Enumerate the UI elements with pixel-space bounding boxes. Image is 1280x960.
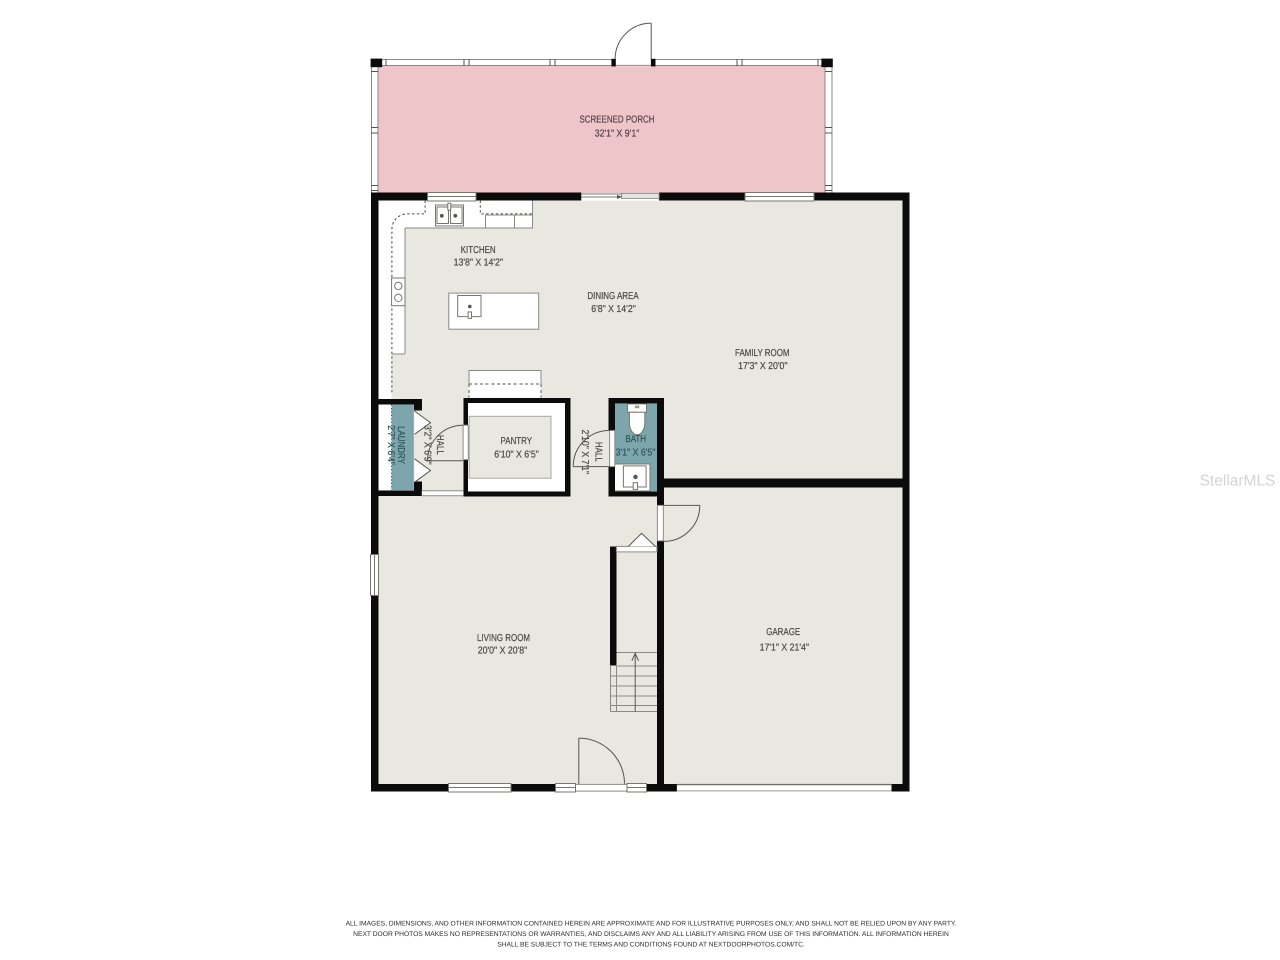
svg-text:LIVING ROOM: LIVING ROOM [477, 633, 530, 644]
svg-text:6'10" X 6'5": 6'10" X 6'5" [494, 449, 539, 460]
svg-text:13'8" X 14'2": 13'8" X 14'2" [454, 258, 504, 269]
svg-text:StellarMLS: StellarMLS [1200, 473, 1276, 490]
svg-text:HALL: HALL [593, 442, 604, 462]
svg-text:PANTRY: PANTRY [501, 436, 533, 447]
svg-text:HALL: HALL [434, 435, 445, 455]
svg-text:2'7" X 6'4": 2'7" X 6'4" [385, 425, 396, 465]
svg-text:6'8" X 14'2": 6'8" X 14'2" [591, 304, 636, 315]
svg-text:ALL IMAGES, DIMENSIONS, AND OT: ALL IMAGES, DIMENSIONS, AND OTHER INFORM… [346, 921, 957, 928]
svg-text:20'0" X 20'8": 20'0" X 20'8" [478, 646, 528, 657]
svg-text:NEXT DOOR PHOTOS MAKES NO REPR: NEXT DOOR PHOTOS MAKES NO REPRESENTATION… [353, 931, 949, 938]
svg-text:2'10" X 7'1": 2'10" X 7'1" [579, 430, 590, 475]
svg-text:3'1" X 6'5": 3'1" X 6'5" [616, 448, 656, 459]
svg-text:SHALL BE SUBJECT TO THE TERMS: SHALL BE SUBJECT TO THE TERMS AND CONDIT… [497, 942, 805, 949]
svg-text:3'2" X 6'9": 3'2" X 6'9" [422, 425, 433, 465]
svg-text:BATH: BATH [625, 434, 646, 445]
svg-text:KITCHEN: KITCHEN [461, 245, 496, 256]
svg-text:SCREENED PORCH: SCREENED PORCH [579, 115, 654, 126]
svg-text:32'1" X 9'1": 32'1" X 9'1" [595, 129, 640, 140]
svg-text:FAMILY ROOM: FAMILY ROOM [735, 348, 789, 359]
svg-text:DINING AREA: DINING AREA [587, 291, 639, 302]
svg-text:17'3" X 20'0": 17'3" X 20'0" [738, 361, 788, 372]
svg-text:17'1" X 21'4": 17'1" X 21'4" [760, 642, 810, 653]
svg-text:GARAGE: GARAGE [766, 627, 800, 638]
